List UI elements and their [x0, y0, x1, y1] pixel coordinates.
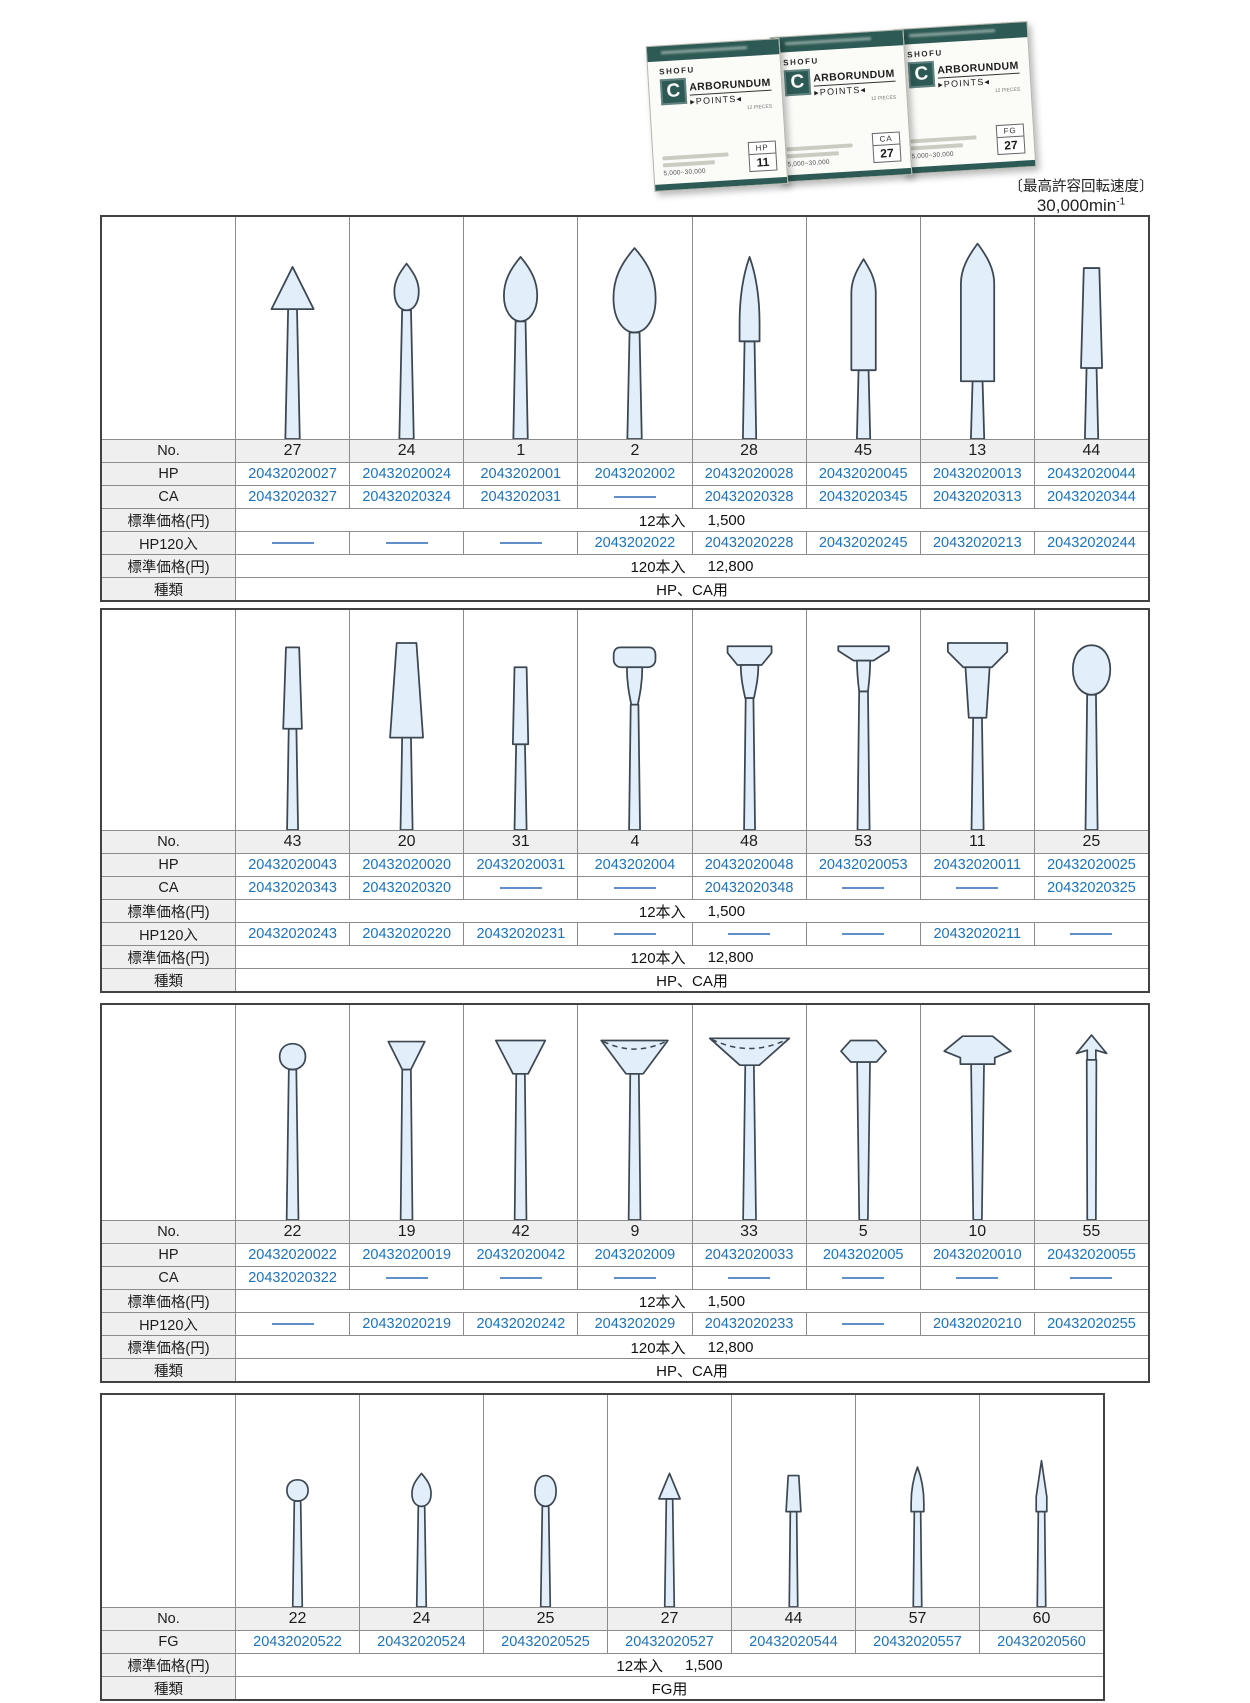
- row-label: 種類: [102, 578, 235, 600]
- row-hp: HP20432020022204320200192043202004220432…: [102, 1243, 1148, 1266]
- shape-cell-slimT: [855, 1395, 979, 1607]
- cone-point-icon: [236, 217, 349, 439]
- row-kind: 種類HP、CA用: [102, 1358, 1148, 1381]
- wheelThin-point-icon: [807, 610, 920, 830]
- budT-point-icon: [360, 1395, 483, 1607]
- point-number-cell: 5: [806, 1221, 920, 1243]
- hexKnob-point-icon: [807, 1005, 920, 1220]
- price-value: 1,500: [708, 512, 746, 529]
- no-item-dash: [614, 1277, 656, 1279]
- product-code-cell: 20432020525: [483, 1631, 607, 1653]
- shape-illustration-row: [102, 1005, 1148, 1220]
- product-code-cell: [349, 1267, 463, 1289]
- catalog-page: SHOFUCARBORUNDUM▸POINTS◂12 PIECES5,000~3…: [0, 0, 1250, 1703]
- point-number-cell: 20: [349, 831, 463, 853]
- product-code-cell: 20432020010: [920, 1244, 1034, 1266]
- product-code-cell: 20432020325: [1034, 877, 1148, 899]
- row-price12: 標準価格(円)12本入1,500: [102, 1289, 1148, 1312]
- box-bottom-row: 5,000~30,000CA27: [786, 131, 902, 168]
- price-value: 1,500: [685, 1657, 723, 1674]
- row-ca: CA20432020327204320203242043202031204320…: [102, 485, 1148, 508]
- cylS-point-icon: [464, 610, 577, 830]
- no-item-dash: [386, 542, 428, 544]
- point-number-cell: 44: [1034, 440, 1148, 462]
- no-item-dash: [842, 1277, 884, 1279]
- product-code-cell: [235, 1313, 349, 1335]
- product-code-cell: 20432020048: [692, 854, 806, 876]
- product-code-cell: 20432020243: [235, 923, 349, 945]
- product-code-cell: [463, 532, 577, 554]
- carborundum-points-table-4: No.22242527445760FG204320205222043202052…: [100, 1393, 1105, 1701]
- no-item-dash: [728, 1277, 770, 1279]
- product-code-cell: 20432020022: [235, 1244, 349, 1266]
- max-speed-caption: 〔最高許容回転速度〕 30,000min-1: [996, 175, 1166, 216]
- row-label: 種類: [102, 1677, 235, 1699]
- row-label: 標準価格(円): [102, 1290, 235, 1312]
- product-code-cell: [577, 486, 691, 508]
- price120-cell: 120本入12,800: [235, 946, 1148, 968]
- price12-cell: 12本入1,500: [235, 1290, 1148, 1312]
- product-code-cell: 20432020027: [235, 463, 349, 485]
- product-code-cell: 20432020033: [692, 1244, 806, 1266]
- blurred-text-line: [786, 143, 852, 151]
- invConeM-point-icon: [464, 1005, 577, 1220]
- shape-cell-taperT: [731, 1395, 855, 1607]
- shape-cell-bullet: [806, 217, 920, 439]
- shape-cell-arrow: [1034, 1005, 1148, 1220]
- row-hp: HP20432020043204320200202043202003120432…: [102, 853, 1148, 876]
- eggT-point-icon: [484, 1395, 607, 1607]
- no-item-dash: [842, 933, 884, 935]
- row-no: No.27241228451344: [102, 439, 1148, 462]
- shape-cell-wheelLarge: [920, 610, 1034, 830]
- c-logo-icon: C: [660, 78, 688, 106]
- pack-quantity: 12本入: [639, 510, 686, 531]
- no-item-dash: [500, 542, 542, 544]
- ballT-point-icon: [236, 1395, 359, 1607]
- product-code-cell: 20432020053: [806, 854, 920, 876]
- point-number-cell: 13: [920, 440, 1034, 462]
- product-code-cell: 20432020211: [920, 923, 1034, 945]
- shape-cell-cylS: [463, 610, 577, 830]
- arrow-point-icon: [1035, 1005, 1148, 1220]
- product-code-cell: [692, 923, 806, 945]
- row-price12: 標準価格(円)12本入1,500: [102, 1653, 1103, 1676]
- point-number-cell: 44: [731, 1608, 855, 1630]
- product-code-cell: 2043202002: [577, 463, 691, 485]
- product-code-cell: 20432020560: [979, 1631, 1103, 1653]
- product-code-cell: [463, 877, 577, 899]
- row-label: 標準価格(円): [102, 1654, 235, 1676]
- product-code-cell: 20432020045: [806, 463, 920, 485]
- price-value: 1,500: [708, 1293, 746, 1310]
- row-label: CA: [102, 877, 235, 899]
- row-label: HP120入: [102, 532, 235, 554]
- tcylL-point-icon: [350, 610, 463, 830]
- no-item-dash: [1070, 933, 1112, 935]
- shape-cell-wheelRound: [577, 610, 691, 830]
- point-number-cell: 2: [577, 440, 691, 462]
- product-code-cell: 20432020024: [349, 463, 463, 485]
- kind-value: HP、CA用: [656, 970, 728, 991]
- shape-row-label-space: [102, 1005, 235, 1220]
- pack-quantity: 12本入: [639, 1291, 686, 1312]
- no-item-dash: [614, 887, 656, 889]
- carborundum-points-table-2: No.432031448531125HP20432020043204320200…: [100, 608, 1150, 993]
- row-fg: FG20432020522204320205242043202052520432…: [102, 1630, 1103, 1653]
- row-label: 種類: [102, 1359, 235, 1381]
- pack-quantity: 120本入: [631, 947, 686, 968]
- no-item-dash: [842, 887, 884, 889]
- product-code-cell: 20432020344: [1034, 486, 1148, 508]
- no-item-dash: [614, 933, 656, 935]
- no-item-dash: [956, 887, 998, 889]
- invConeS-point-icon: [350, 1005, 463, 1220]
- hat-point-icon: [921, 1005, 1034, 1220]
- blurred-text-line: [911, 143, 963, 150]
- point-number-cell: 60: [979, 1608, 1103, 1630]
- point-number-cell: 43: [235, 831, 349, 853]
- dishDash-point-icon: [693, 1005, 806, 1220]
- row-price120: 標準価格(円)120本入12,800: [102, 945, 1148, 968]
- product-code-cell: [1034, 1267, 1148, 1289]
- shape-illustration-row: [102, 610, 1148, 830]
- product-code-cell: 20432020210: [920, 1313, 1034, 1335]
- product-code-cell: 20432020044: [1034, 463, 1148, 485]
- product-code-cell: 20432020245: [806, 532, 920, 554]
- box-top-gloss: [909, 29, 995, 37]
- product-code-cell: 20432020043: [235, 854, 349, 876]
- logo-text: ARBORUNDUM▸POINTS◂12 PIECES: [937, 60, 1020, 98]
- point-number-cell: 31: [463, 831, 577, 853]
- shape-cell-budS: [349, 217, 463, 439]
- price120-cell: 120本入12,800: [235, 555, 1148, 577]
- product-code-cell: [806, 1313, 920, 1335]
- row-label: 標準価格(円): [102, 946, 235, 968]
- budL-point-icon: [578, 217, 691, 439]
- type-number-label: CA27: [872, 131, 902, 163]
- shape-cell-budT: [359, 1395, 483, 1607]
- shape-cell-wheelFlat: [692, 610, 806, 830]
- kind-value: FG用: [652, 1678, 688, 1699]
- price12-cell: 12本入1,500: [235, 509, 1148, 531]
- row-price12: 標準価格(円)12本入1,500: [102, 899, 1148, 922]
- row-price120: 標準価格(円)120本入12,800: [102, 554, 1148, 577]
- shape-cell-invConeS: [349, 1005, 463, 1220]
- row-label: FG: [102, 1631, 235, 1653]
- shape-illustration-row: [102, 1395, 1103, 1607]
- product-code-cell: 20432020522: [235, 1631, 359, 1653]
- row-kind: 種類FG用: [102, 1676, 1103, 1699]
- no-item-dash: [500, 887, 542, 889]
- box-bottom-row: 5,000~30,000FG27: [910, 123, 1026, 160]
- shape-cell-ballT: [235, 1395, 359, 1607]
- blurred-text-line: [663, 160, 715, 167]
- knob-point-icon: [1035, 610, 1148, 830]
- max-speed-value: 30,000min-1: [996, 196, 1166, 216]
- max-speed-label: 〔最高許容回転速度〕: [996, 175, 1166, 196]
- price120-cell: 120本入12,800: [235, 1336, 1148, 1358]
- price-value: 12,800: [708, 1339, 754, 1356]
- row-kind: 種類HP、CA用: [102, 968, 1148, 991]
- shape-cell-budM: [463, 217, 577, 439]
- taperFlat-point-icon: [1035, 217, 1148, 439]
- product-code-cell: 20432020327: [235, 486, 349, 508]
- product-photo: SHOFUCARBORUNDUM▸POINTS◂12 PIECES5,000~3…: [648, 22, 1058, 194]
- row-price120: 標準価格(円)120本入12,800: [102, 1335, 1148, 1358]
- point-number-cell: 33: [692, 1221, 806, 1243]
- product-code-cell: 20432020343: [235, 877, 349, 899]
- row-label: No.: [102, 1608, 235, 1630]
- box-bottom-band: [655, 177, 787, 191]
- price-value: 12,800: [708, 949, 754, 966]
- row-hp120: HP120入2043202024320432020220204320202312…: [102, 922, 1148, 945]
- shape-cell-coneT: [607, 1395, 731, 1607]
- pack-quantity: 120本入: [631, 556, 686, 577]
- row-label: HP: [102, 854, 235, 876]
- carborundum-logo-row: CARBORUNDUM▸POINTS◂12 PIECES: [660, 72, 783, 116]
- product-code-cell: [577, 1267, 691, 1289]
- no-item-dash: [500, 1277, 542, 1279]
- no-item-dash: [728, 933, 770, 935]
- product-code-cell: 2043202004: [577, 854, 691, 876]
- speed-range-label: 5,000~30,000: [911, 149, 977, 160]
- product-code-cell: 2043202031: [463, 486, 577, 508]
- shape-cell-cone: [235, 217, 349, 439]
- point-number-cell: 24: [359, 1608, 483, 1630]
- row-ca: CA20432020322: [102, 1266, 1148, 1289]
- product-code-cell: 20432020345: [806, 486, 920, 508]
- point-number-cell: 22: [235, 1221, 349, 1243]
- product-code-cell: 20432020013: [920, 463, 1034, 485]
- point-number-cell: 27: [235, 440, 349, 462]
- product-code-cell: 20432020228: [692, 532, 806, 554]
- type-number: 27: [998, 137, 1025, 155]
- no-item-dash: [272, 1323, 314, 1325]
- kind-value: HP、CA用: [656, 1360, 728, 1381]
- shape-cell-wheelThin: [806, 610, 920, 830]
- row-label: HP120入: [102, 923, 235, 945]
- product-code-cell: 20432020348: [692, 877, 806, 899]
- slimT-point-icon: [856, 1395, 979, 1607]
- product-code-cell: [577, 877, 691, 899]
- product-code-cell: 20432020219: [349, 1313, 463, 1335]
- shape-cell-hexKnob: [806, 1005, 920, 1220]
- wheelRound-point-icon: [578, 610, 691, 830]
- kind-cell: HP、CA用: [235, 969, 1148, 991]
- product-box-hp: SHOFUCARBORUNDUM▸POINTS◂12 PIECES5,000~3…: [646, 38, 789, 192]
- row-no: No.432031448531125: [102, 830, 1148, 853]
- tcylS-point-icon: [236, 610, 349, 830]
- point-number-cell: 19: [349, 1221, 463, 1243]
- point-number-cell: 53: [806, 831, 920, 853]
- pack-quantity: 120本入: [631, 1337, 686, 1358]
- pack-quantity: 12本入: [616, 1655, 663, 1676]
- row-label: CA: [102, 1267, 235, 1289]
- fine-print: 5,000~30,000: [662, 152, 729, 177]
- product-code-cell: 20432020042: [463, 1244, 577, 1266]
- product-code-cell: 20432020328: [692, 486, 806, 508]
- point-number-cell: 1: [463, 440, 577, 462]
- shape-cell-tcylS: [235, 610, 349, 830]
- pack-quantity: 12本入: [639, 901, 686, 922]
- row-price12: 標準価格(円)12本入1,500: [102, 508, 1148, 531]
- shape-illustration-row: [102, 217, 1148, 439]
- product-code-cell: 20432020320: [349, 877, 463, 899]
- row-label: No.: [102, 440, 235, 462]
- carborundum-points-table-1: No.27241228451344HP204320200272043202002…: [100, 215, 1150, 602]
- product-code-cell: 20432020019: [349, 1244, 463, 1266]
- ball-point-icon: [236, 1005, 349, 1220]
- speed-range-label: 5,000~30,000: [787, 157, 853, 168]
- product-code-cell: 20432020313: [920, 486, 1034, 508]
- row-label: HP: [102, 1244, 235, 1266]
- product-code-cell: [806, 1267, 920, 1289]
- blurred-text-line: [910, 135, 976, 143]
- shape-cell-taperPoint: [692, 217, 806, 439]
- price12-cell: 12本入1,500: [235, 900, 1148, 922]
- budM-point-icon: [464, 217, 577, 439]
- type-number-label: HP11: [748, 140, 778, 172]
- budS-point-icon: [350, 217, 463, 439]
- row-ca: CA20432020343204320203202043202034820432…: [102, 876, 1148, 899]
- shape-cell-taperFlat: [1034, 217, 1148, 439]
- c-logo-icon: C: [784, 69, 812, 97]
- logo-text: ARBORUNDUM▸POINTS◂12 PIECES: [813, 68, 896, 106]
- taperT-point-icon: [732, 1395, 855, 1607]
- point-number-cell: 9: [577, 1221, 691, 1243]
- row-label: No.: [102, 1221, 235, 1243]
- shape-cell-eggT: [483, 1395, 607, 1607]
- box-bottom-row: 5,000~30,000HP11: [662, 140, 778, 177]
- product-code-cell: 2043202001: [463, 463, 577, 485]
- shape-row-label-space: [102, 610, 235, 830]
- no-item-dash: [842, 1323, 884, 1325]
- type-number: 11: [750, 154, 777, 172]
- price12-cell: 12本入1,500: [235, 1654, 1103, 1676]
- shape-row-label-space: [102, 217, 235, 439]
- point-number-cell: 28: [692, 440, 806, 462]
- product-code-cell: [806, 923, 920, 945]
- row-hp120: HP120入2043202021920432020242204320202920…: [102, 1312, 1148, 1335]
- shape-cell-knob: [1034, 610, 1148, 830]
- c-logo-icon: C: [908, 61, 936, 89]
- price-value: 12,800: [708, 558, 754, 575]
- product-code-cell: 2043202029: [577, 1313, 691, 1335]
- type-number-label: FG27: [996, 123, 1026, 155]
- box-bottom-band: [779, 168, 911, 182]
- product-code-cell: 20432020324: [349, 486, 463, 508]
- blurred-text-line: [662, 152, 728, 160]
- carborundum-logo-row: CARBORUNDUM▸POINTS◂12 PIECES: [908, 55, 1031, 99]
- product-code-cell: [235, 532, 349, 554]
- product-code-cell: 20432020322: [235, 1267, 349, 1289]
- product-code-cell: 20432020527: [607, 1631, 731, 1653]
- row-no: No.22194293351055: [102, 1220, 1148, 1243]
- shape-row-label-space: [102, 1395, 235, 1607]
- shape-cell-invConeM: [463, 1005, 577, 1220]
- shape-cell-dishDash: [692, 1005, 806, 1220]
- shape-cell-ball: [235, 1005, 349, 1220]
- point-number-cell: 45: [806, 440, 920, 462]
- kind-value: HP、CA用: [656, 579, 728, 600]
- product-code-cell: 2043202022: [577, 532, 691, 554]
- product-code-cell: 20432020031: [463, 854, 577, 876]
- kind-cell: HP、CA用: [235, 578, 1148, 600]
- no-item-dash: [1070, 1277, 1112, 1279]
- wheelLarge-point-icon: [921, 610, 1034, 830]
- row-label: 標準価格(円): [102, 900, 235, 922]
- point-number-cell: 48: [692, 831, 806, 853]
- shape-cell-budL: [577, 217, 691, 439]
- product-code-cell: [349, 532, 463, 554]
- torpedo-point-icon: [921, 217, 1034, 439]
- shape-cell-cupDash: [577, 1005, 691, 1220]
- product-code-cell: [577, 923, 691, 945]
- product-code-cell: 2043202005: [806, 1244, 920, 1266]
- row-label: HP120入: [102, 1313, 235, 1335]
- product-code-cell: 20432020524: [359, 1631, 483, 1653]
- point-number-cell: 42: [463, 1221, 577, 1243]
- product-code-cell: [806, 877, 920, 899]
- blurred-text-line: [787, 151, 839, 158]
- shape-cell-torpedo: [920, 217, 1034, 439]
- product-code-cell: [920, 1267, 1034, 1289]
- fine-print: 5,000~30,000: [910, 135, 977, 160]
- shape-cell-needleT: [979, 1395, 1103, 1607]
- product-code-cell: 20432020231: [463, 923, 577, 945]
- point-number-cell: 57: [855, 1608, 979, 1630]
- no-item-dash: [614, 496, 656, 498]
- point-number-cell: 27: [607, 1608, 731, 1630]
- row-label: 標準価格(円): [102, 1336, 235, 1358]
- product-box-ca: SHOFUCARBORUNDUM▸POINTS◂12 PIECES5,000~3…: [770, 29, 913, 183]
- product-code-cell: [463, 1267, 577, 1289]
- product-code-cell: 20432020220: [349, 923, 463, 945]
- row-label: No.: [102, 831, 235, 853]
- product-code-cell: 20432020028: [692, 463, 806, 485]
- wheelFlat-point-icon: [693, 610, 806, 830]
- taperPoint-point-icon: [693, 217, 806, 439]
- needleT-point-icon: [980, 1395, 1103, 1607]
- point-number-cell: 22: [235, 1608, 359, 1630]
- product-code-cell: 20432020020: [349, 854, 463, 876]
- point-number-cell: 11: [920, 831, 1034, 853]
- no-item-dash: [386, 1277, 428, 1279]
- logo-text: ARBORUNDUM▸POINTS◂12 PIECES: [689, 77, 772, 115]
- price-value: 1,500: [708, 903, 746, 920]
- box-top-band: [647, 39, 780, 62]
- product-code-cell: 20432020233: [692, 1313, 806, 1335]
- point-number-cell: 25: [1034, 831, 1148, 853]
- point-number-cell: 24: [349, 440, 463, 462]
- no-item-dash: [272, 542, 314, 544]
- product-code-cell: 20432020055: [1034, 1244, 1148, 1266]
- carborundum-points-table-3: No.22194293351055HP204320200222043202001…: [100, 1003, 1150, 1383]
- type-number: 27: [874, 145, 901, 163]
- fine-print: 5,000~30,000: [786, 143, 853, 168]
- point-number-cell: 55: [1034, 1221, 1148, 1243]
- box-top-gloss: [785, 37, 871, 45]
- row-hp120: HP120入2043202022204320202282043202024520…: [102, 531, 1148, 554]
- box-top-band: [771, 30, 904, 53]
- row-label: 標準価格(円): [102, 555, 235, 577]
- product-code-cell: [692, 1267, 806, 1289]
- box-bottom-band: [903, 160, 1035, 174]
- row-hp: HP20432020027204320200242043202001204320…: [102, 462, 1148, 485]
- product-code-cell: 20432020255: [1034, 1313, 1148, 1335]
- row-label: HP: [102, 463, 235, 485]
